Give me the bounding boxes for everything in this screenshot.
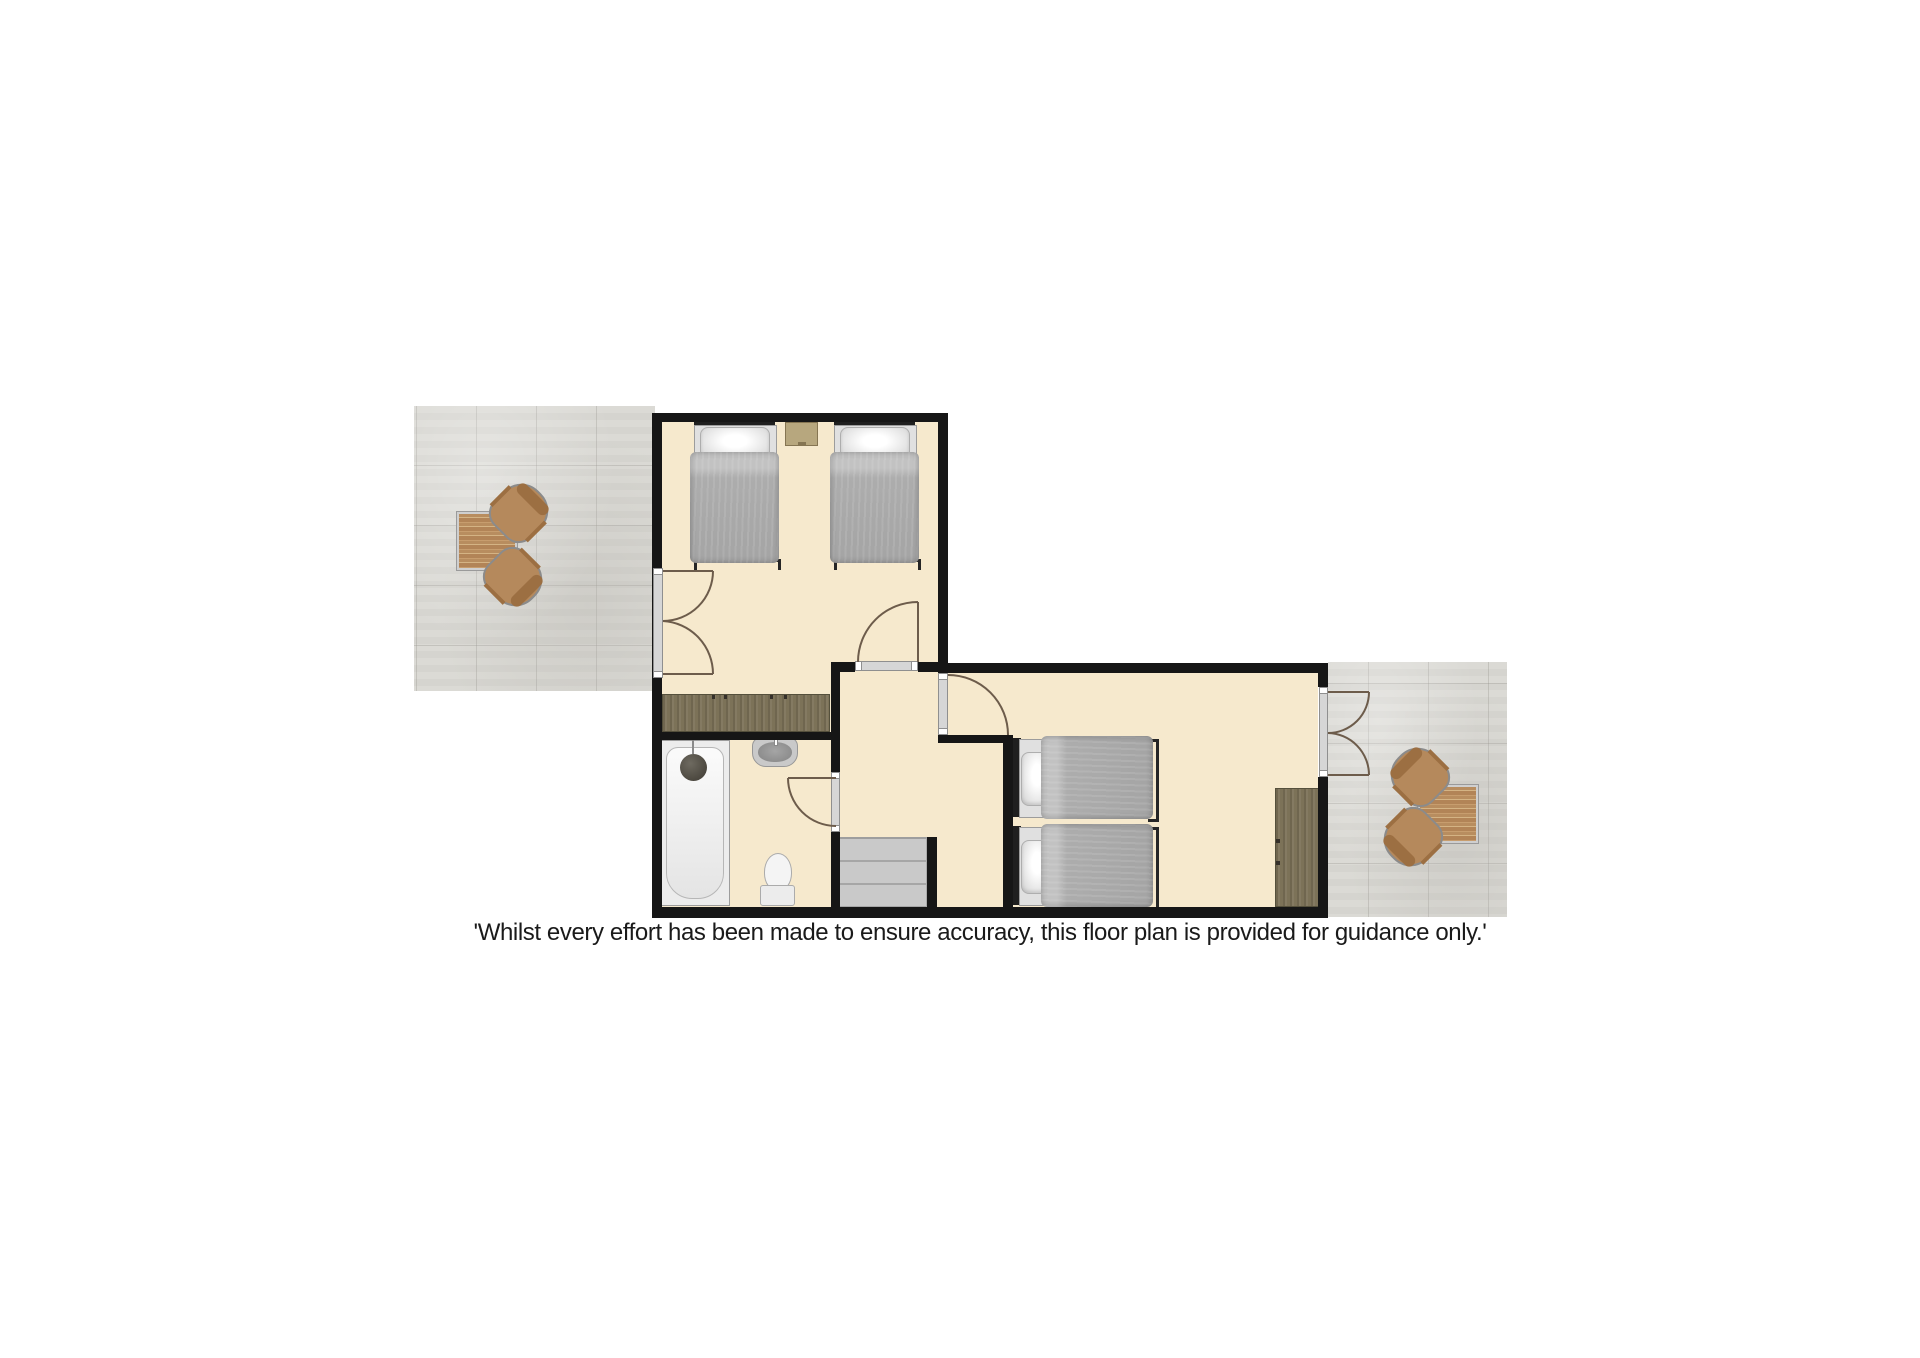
wall-exterior-right-b	[1318, 777, 1328, 918]
bathtub-tap	[692, 738, 694, 754]
wall-mid-vertical-lower	[831, 832, 840, 918]
floorplan-canvas: 'Whilst every effort has been made to en…	[0, 0, 1920, 1358]
door-frame-bathroom	[831, 772, 840, 832]
bed-top-right	[830, 419, 919, 567]
wall-bedroom-right-step	[938, 735, 1013, 743]
wall-top-bedroom-right	[948, 663, 1328, 673]
bedside-table	[785, 422, 818, 446]
door-frame-bedroom-right	[938, 673, 948, 735]
basin-bowl	[758, 742, 792, 762]
wall-exterior-bottom	[652, 907, 1328, 918]
door-frame-bedroom-top	[855, 661, 918, 671]
bed-top-left	[690, 419, 779, 567]
wall-bedroom-right-left	[1003, 743, 1013, 918]
bathtub-drain	[680, 754, 707, 781]
floor-corridor-sliver	[938, 743, 948, 907]
patio-left-tiles	[414, 406, 655, 691]
wall-top-bedroom-top	[652, 413, 948, 422]
basin	[752, 737, 798, 767]
door-frame-patio-left	[653, 568, 663, 678]
wall-landing-top-b	[918, 662, 948, 672]
door-frame-patio-right	[1319, 687, 1328, 777]
disclaimer-text: 'Whilst every effort has been made to en…	[430, 919, 1530, 947]
wall-stairs-right	[927, 837, 937, 918]
bathtub	[660, 740, 730, 906]
wall-exterior-right-a	[1318, 663, 1328, 687]
wardrobe-bedroom-right	[1275, 788, 1320, 907]
wardrobe-bedroom-top	[662, 694, 830, 732]
bed-right-lower	[1013, 824, 1159, 907]
staircase	[840, 837, 927, 907]
wall-bedroom-top-right	[938, 413, 948, 673]
toilet-cistern	[760, 885, 795, 906]
wall-under-wardrobe	[652, 732, 840, 740]
wall-mid-vertical-upper	[831, 662, 840, 772]
bed-right-upper	[1013, 736, 1159, 819]
